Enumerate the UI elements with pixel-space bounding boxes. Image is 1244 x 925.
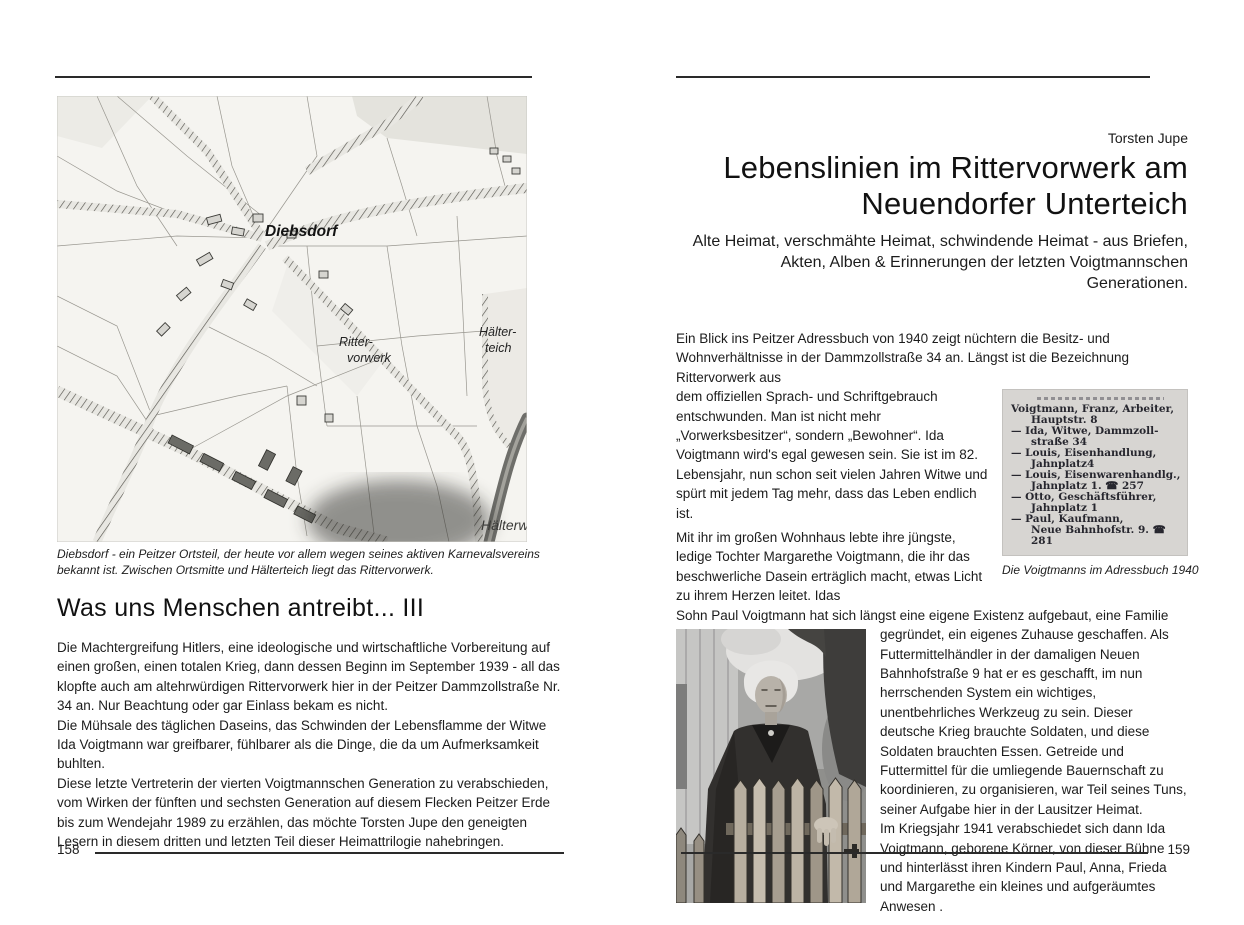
top-rule-left: [55, 76, 532, 78]
addressbook-entry: — Ida, Witwe, Dammzoll- straße 34: [1011, 426, 1182, 448]
map-label-rittervorwerk-2: vorwerk: [347, 351, 392, 365]
addressbook-entry: — Louis, Eisenhandlung, Jahnplatz4: [1011, 448, 1182, 470]
map-label-haelterw-partial: Hälterw: [481, 517, 527, 533]
article-title-line-1: Lebenslinien im Rittervorwerk am: [676, 150, 1188, 186]
addressbook-caption: Die Voigtmanns im Adressbuch 1940: [1002, 561, 1188, 580]
addressbook-clipped-line: [1037, 397, 1164, 400]
left-article-body: Die Machtergreifung Hitlers, eine ideolo…: [57, 638, 568, 851]
bottom-rule-right: [681, 852, 1148, 854]
addressbook-figure: Voigtmann, Franz, Arbeiter, Hauptstr. 8 …: [1002, 389, 1188, 580]
body-paragraph: Diese letzte Vertreterin der vierten Voi…: [57, 774, 568, 852]
addressbook-entry: — Louis, Eisenwarenhandlg., Jahnplatz 1.…: [1011, 470, 1182, 492]
body-paragraph: Die Machtergreifung Hitlers, eine ideolo…: [57, 638, 568, 716]
map-label-rittervorwerk-1: Ritter-: [339, 335, 373, 349]
map-label-diebsdorf: Diebsdorf: [265, 223, 339, 240]
addressbook-entry: — Paul, Kaufmann, Neue Bahnhofstr. 9. ☎ …: [1011, 514, 1182, 547]
article-subtitle: Alte Heimat, verschmähte Heimat, schwind…: [676, 231, 1188, 294]
map-caption: Diebsdorf - ein Peitzer Ortsteil, der he…: [57, 547, 564, 578]
bottom-rule-left: [95, 852, 564, 854]
map-label-haelterteich-2: teich: [485, 341, 511, 355]
author-byline: Torsten Jupe: [676, 130, 1188, 146]
map-image: Diebsdorf Ritter- vorwerk Hälter- teich …: [57, 96, 527, 542]
map-label-haelterteich-1: Hälter-: [479, 325, 516, 339]
article-title: Lebenslinien im Rittervorwerk am Neuendo…: [676, 150, 1188, 222]
body-paragraph: Sohn Paul Voigtmann hat sich längst eine…: [676, 606, 1188, 625]
map-figure: Diebsdorf Ritter- vorwerk Hälter- teich …: [57, 96, 527, 542]
photo-ida-voigtmann: [676, 629, 866, 903]
top-rule-right: [676, 76, 1150, 78]
body-paragraph: Die Mühsale des täglichen Daseins, das S…: [57, 716, 568, 774]
body-paragraph: Ein Blick ins Peitzer Adressbuch von 194…: [676, 329, 1188, 387]
addressbook-clipping: Voigtmann, Franz, Arbeiter, Hauptstr. 8 …: [1002, 389, 1188, 556]
addressbook-entry: — Otto, Geschäftsführer, Jahnplatz 1: [1011, 492, 1182, 514]
page-number-left: 158: [57, 842, 80, 857]
photo-figure: [676, 629, 866, 903]
article-title-line-2: Neuendorfer Unterteich: [676, 186, 1188, 222]
section-heading: Was uns Menschen antreibt... III: [57, 594, 568, 623]
page-number-right: 159: [1158, 842, 1190, 857]
addressbook-entry: Voigtmann, Franz, Arbeiter, Hauptstr. 8: [1011, 404, 1182, 426]
right-article-body: Ein Blick ins Peitzer Adressbuch von 194…: [676, 329, 1188, 925]
book-spread: Diebsdorf Ritter- vorwerk Hälter- teich …: [0, 0, 1244, 925]
